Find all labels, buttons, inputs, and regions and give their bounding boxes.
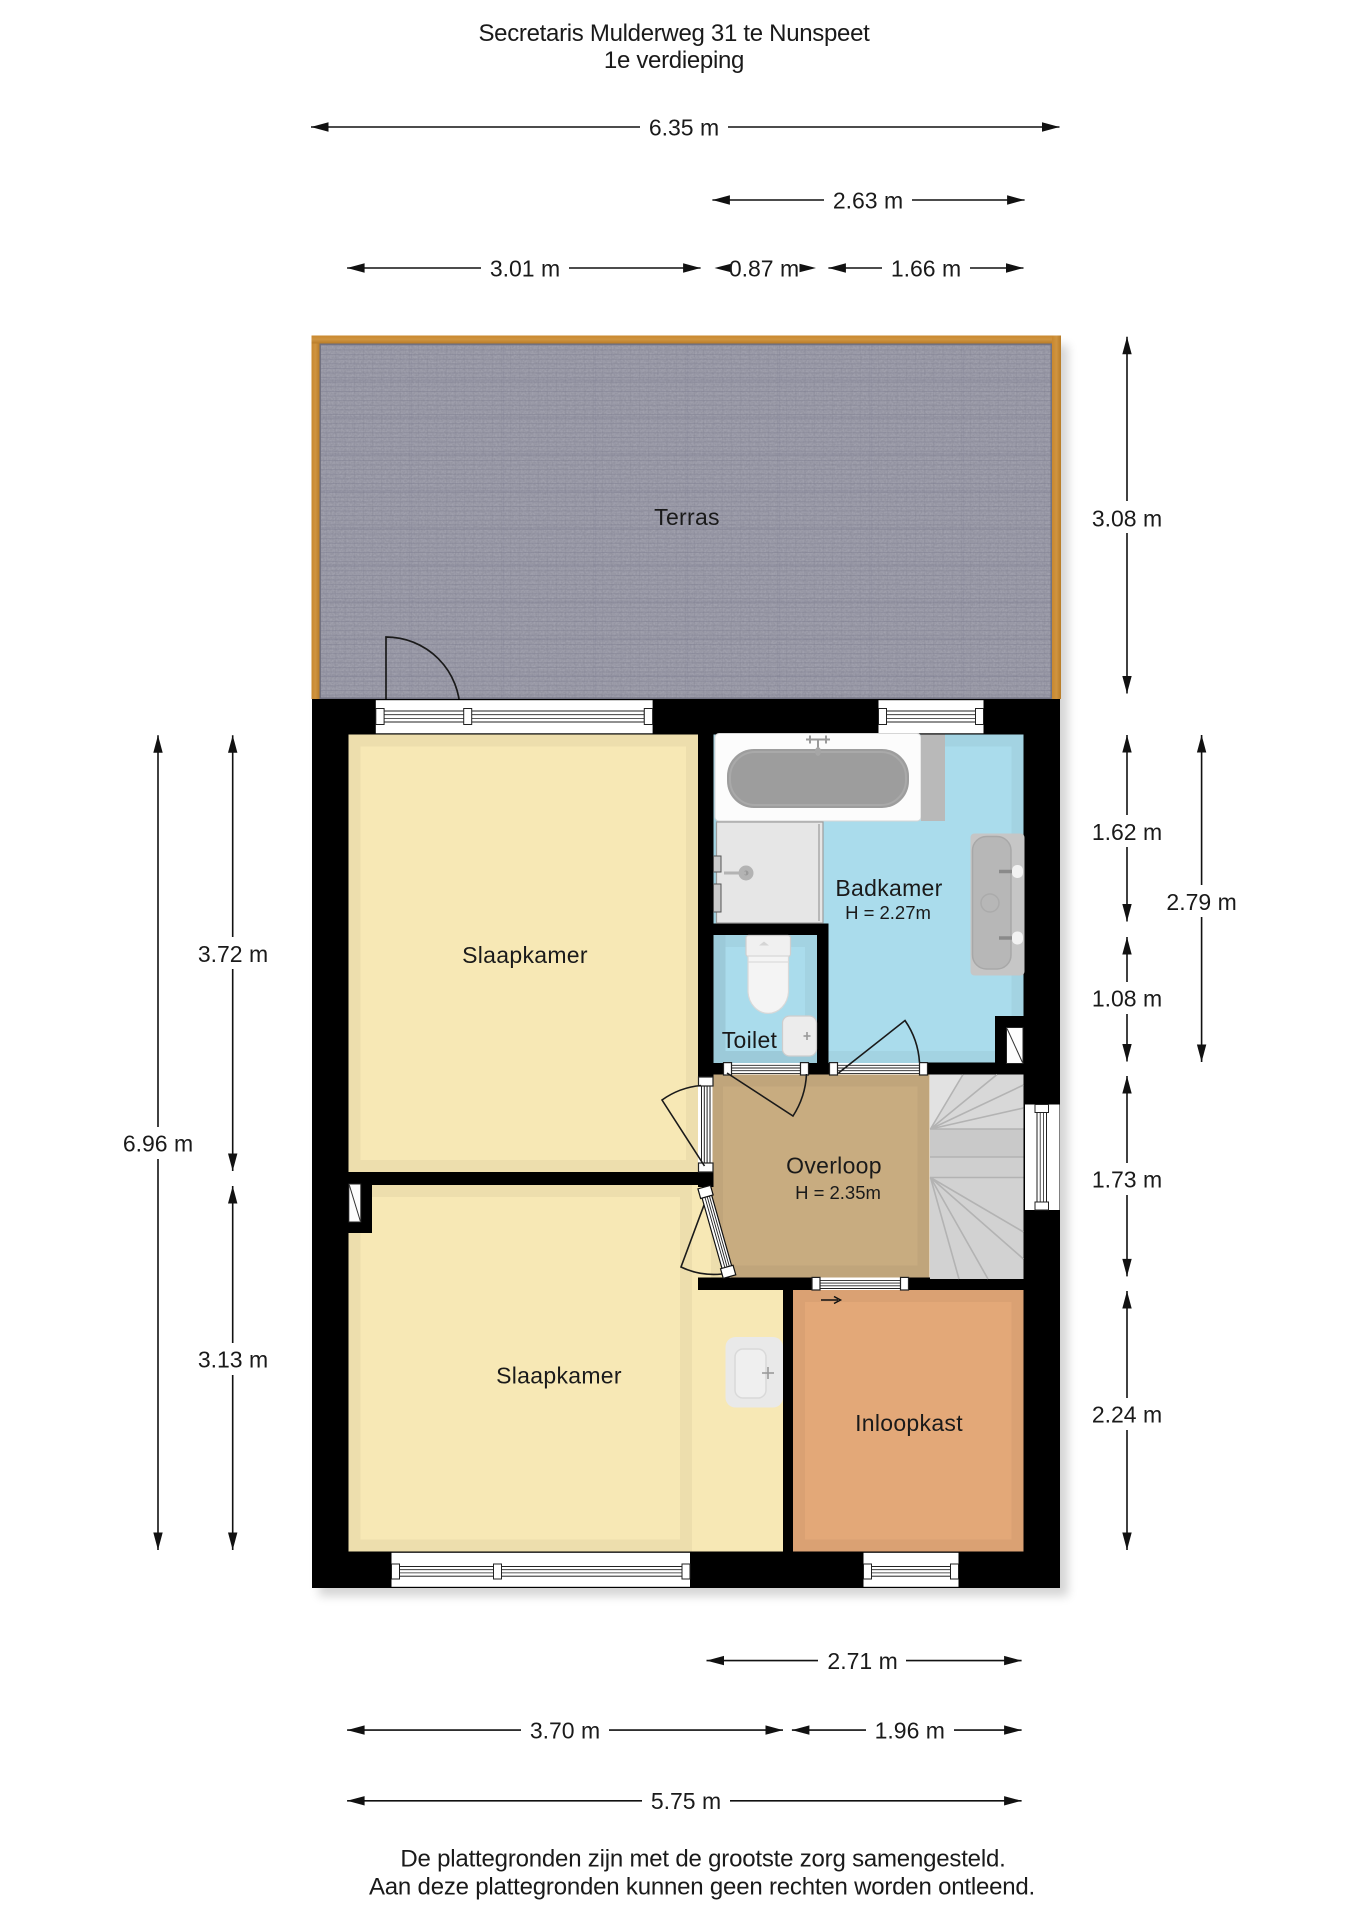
svg-text:3.01 m: 3.01 m bbox=[490, 255, 560, 281]
svg-text:Toilet: Toilet bbox=[722, 1027, 778, 1053]
svg-text:2.24 m: 2.24 m bbox=[1092, 1401, 1162, 1427]
svg-text:6.35 m: 6.35 m bbox=[649, 114, 719, 140]
svg-text:Terras: Terras bbox=[654, 504, 720, 530]
svg-text:6.96 m: 6.96 m bbox=[123, 1130, 193, 1156]
svg-text:1.73 m: 1.73 m bbox=[1092, 1166, 1162, 1192]
svg-text:1.96 m: 1.96 m bbox=[875, 1717, 945, 1743]
svg-text:Slaapkamer: Slaapkamer bbox=[462, 942, 588, 968]
svg-text:H = 2.27m: H = 2.27m bbox=[845, 902, 931, 923]
svg-text:1.66 m: 1.66 m bbox=[891, 255, 961, 281]
svg-text:3.72 m: 3.72 m bbox=[198, 941, 268, 967]
svg-text:Overloop: Overloop bbox=[786, 1153, 882, 1179]
svg-text:3.70 m: 3.70 m bbox=[530, 1717, 600, 1743]
svg-text:Secretaris Mulderweg 31 te Nun: Secretaris Mulderweg 31 te Nunspeet bbox=[478, 20, 870, 47]
svg-text:1.08 m: 1.08 m bbox=[1092, 986, 1162, 1012]
svg-text:5.75 m: 5.75 m bbox=[651, 1788, 721, 1814]
svg-text:2.63 m: 2.63 m bbox=[833, 187, 903, 213]
svg-text:3.13 m: 3.13 m bbox=[198, 1346, 268, 1372]
svg-text:Slaapkamer: Slaapkamer bbox=[496, 1363, 622, 1389]
svg-text:2.71 m: 2.71 m bbox=[827, 1648, 897, 1674]
svg-text:Badkamer: Badkamer bbox=[835, 875, 942, 901]
svg-text:0.87 m: 0.87 m bbox=[729, 255, 799, 281]
svg-text:3.08 m: 3.08 m bbox=[1092, 506, 1162, 532]
svg-text:1e verdieping: 1e verdieping bbox=[604, 47, 744, 74]
svg-text:2.79 m: 2.79 m bbox=[1166, 889, 1236, 915]
svg-text:H = 2.35m: H = 2.35m bbox=[795, 1182, 881, 1203]
svg-text:Aan deze plattegronden kunnen: Aan deze plattegronden kunnen geen recht… bbox=[369, 1874, 1035, 1901]
svg-text:Inloopkast: Inloopkast bbox=[855, 1410, 963, 1436]
svg-text:1.62 m: 1.62 m bbox=[1092, 819, 1162, 845]
svg-text:De plattegronden zijn met de g: De plattegronden zijn met de grootste zo… bbox=[400, 1845, 1005, 1872]
